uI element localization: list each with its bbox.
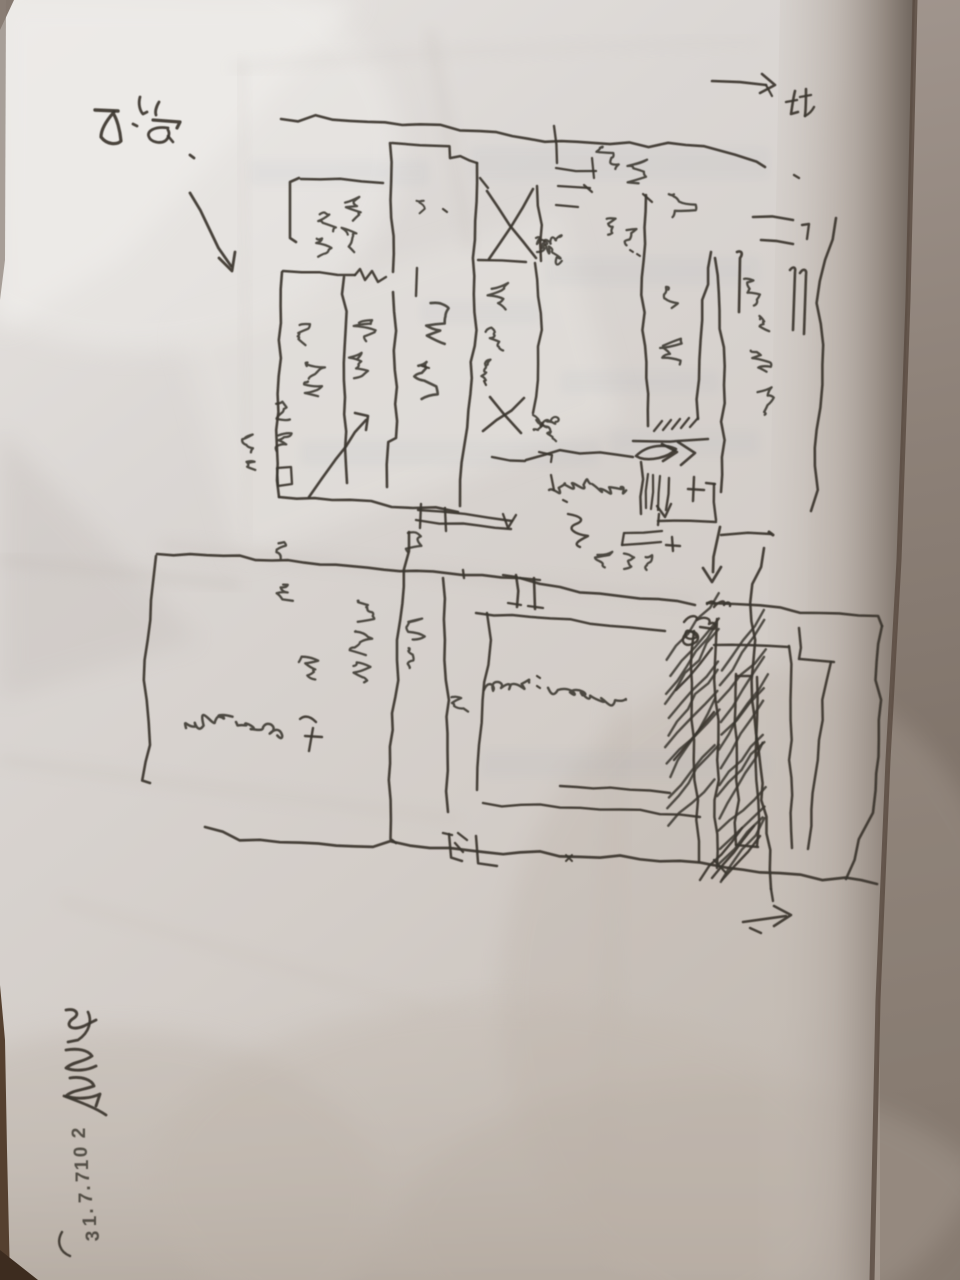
svg-text:7: 7 [76, 1193, 97, 1204]
svg-text:1: 1 [72, 1159, 93, 1170]
svg-text:0: 0 [71, 1147, 92, 1158]
svg-text:2: 2 [69, 1128, 90, 1139]
svg-text:.: . [74, 1185, 95, 1190]
svg-text:7: 7 [73, 1172, 94, 1183]
svg-text:1: 1 [80, 1215, 101, 1226]
svg-text:3: 3 [83, 1231, 104, 1242]
svg-text:.: . [77, 1208, 98, 1213]
